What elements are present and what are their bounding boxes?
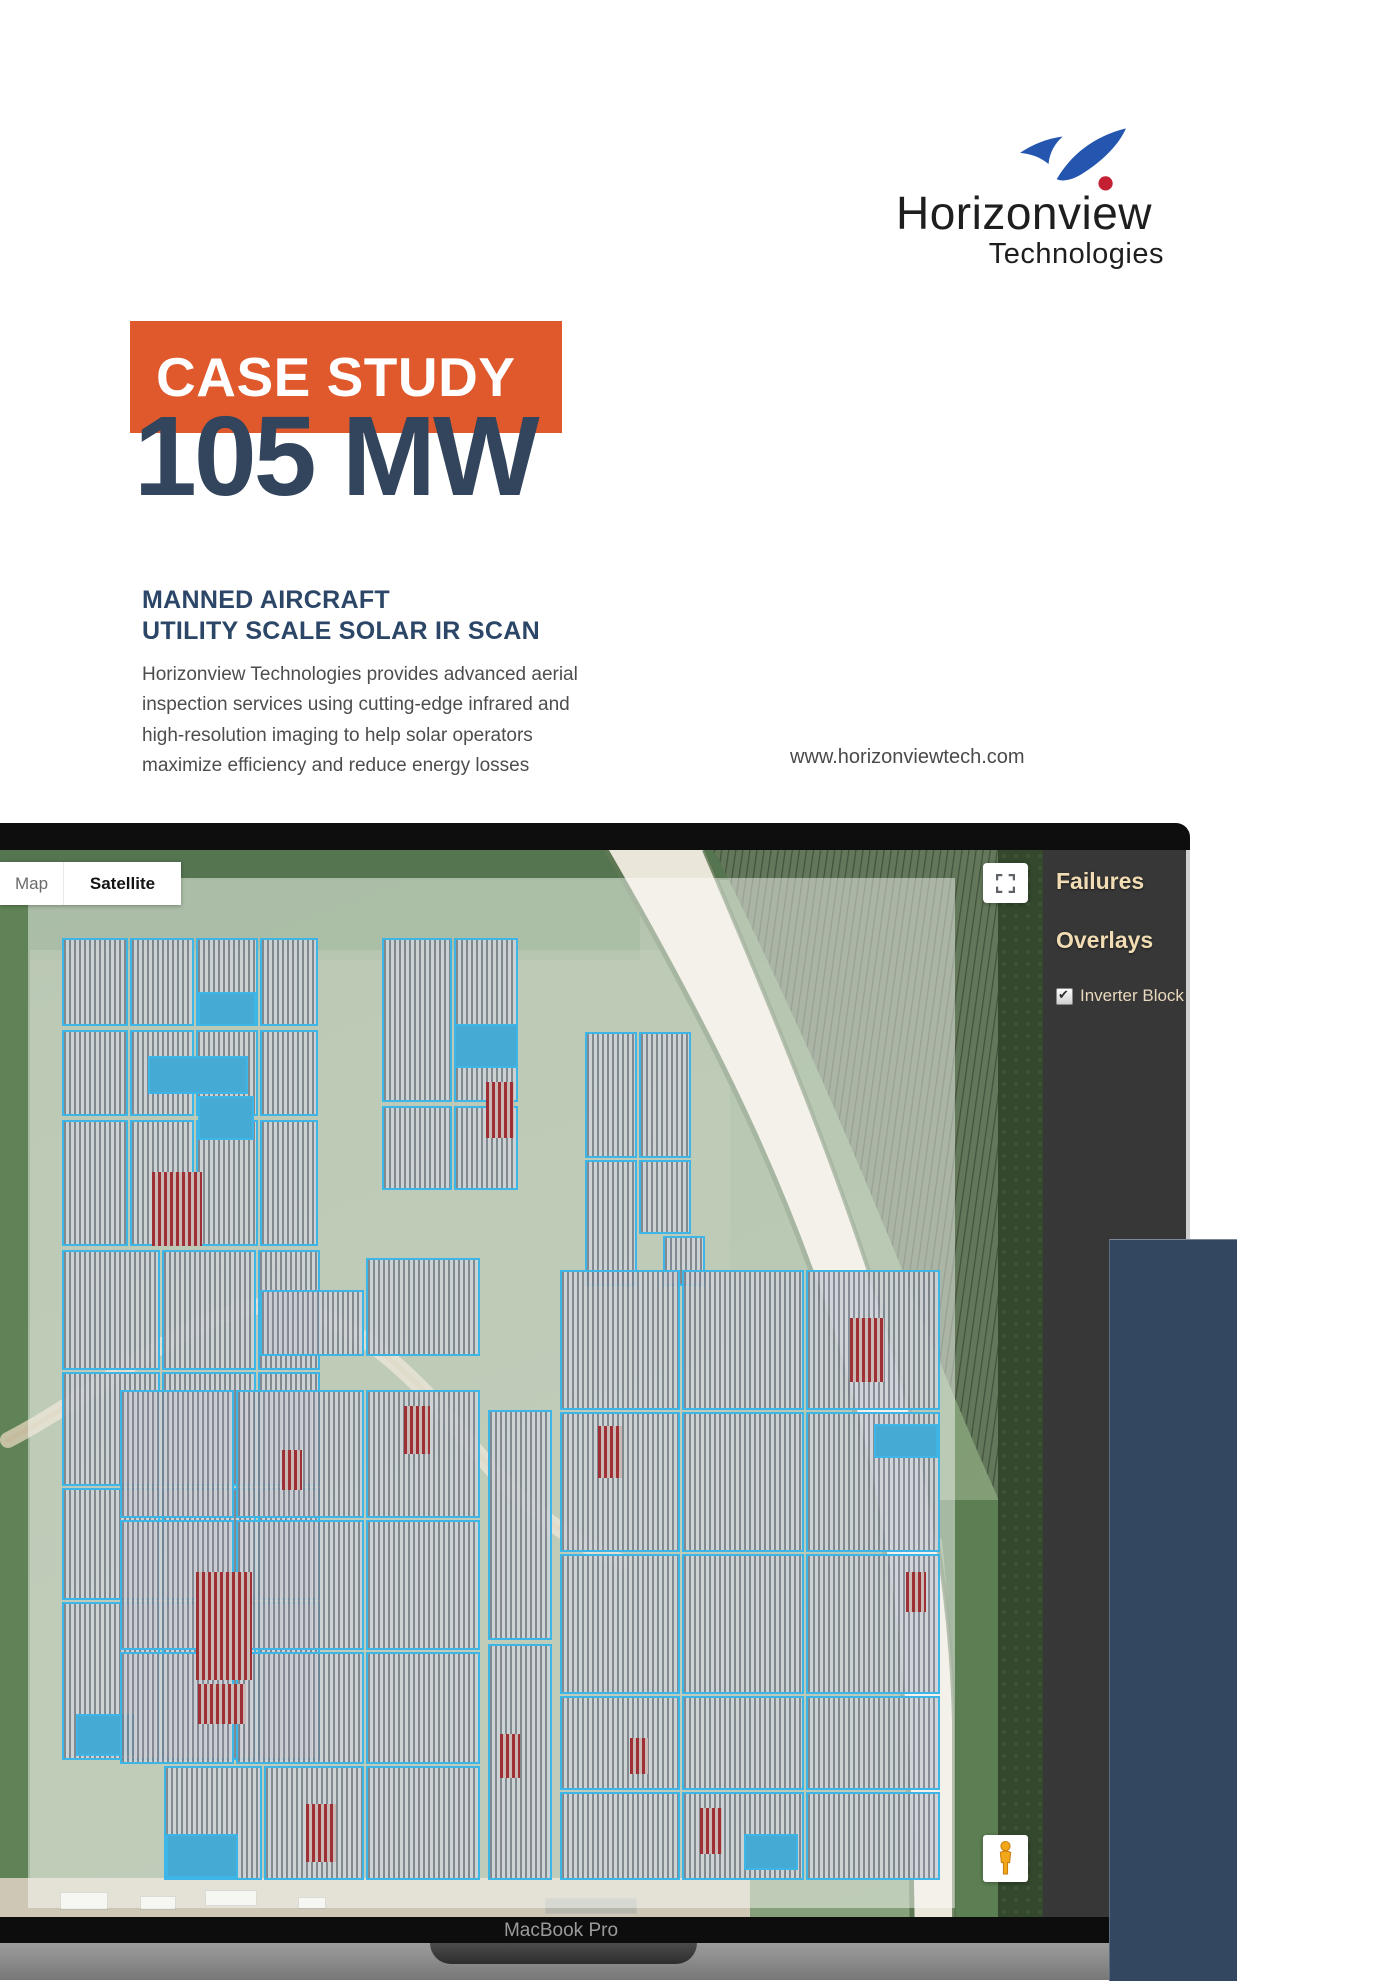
solar-block	[62, 1120, 128, 1246]
logo-wordmark: Horizonview	[896, 186, 1164, 240]
section-heading: MANNED AIRCRAFT UTILITY SCALE SOLAR IR S…	[142, 585, 540, 647]
solar-block	[560, 1554, 680, 1694]
solar-block	[162, 1250, 256, 1370]
solar-block	[62, 1250, 160, 1370]
solar-block	[198, 992, 256, 1026]
solar-block	[306, 1804, 336, 1862]
solar-block	[366, 1652, 480, 1764]
intro-paragraph: Horizonview Technologies provides advanc…	[142, 660, 578, 782]
map-button[interactable]: Map	[0, 862, 64, 905]
panel-title-failures: Failures	[1056, 868, 1186, 895]
check-icon: ✔	[1058, 987, 1069, 1003]
solar-blocks-layer	[0, 850, 1043, 1917]
solar-block	[236, 1652, 364, 1764]
solar-block	[62, 938, 128, 1026]
map-type-control: Map Satellite	[0, 862, 181, 905]
solar-block	[639, 1160, 691, 1234]
solar-block	[152, 1172, 202, 1246]
solar-block	[486, 1082, 514, 1138]
intro-line: inspection services using cutting-edge i…	[142, 690, 578, 720]
solar-block	[260, 938, 318, 1026]
solar-block	[806, 1696, 940, 1790]
solar-block	[560, 1696, 680, 1790]
solar-block	[382, 938, 452, 1102]
solar-block	[366, 1520, 480, 1650]
solar-block	[366, 1766, 480, 1880]
solar-block	[260, 1030, 318, 1116]
map-canvas[interactable]: Map Satellite	[0, 850, 1043, 1917]
solar-block	[382, 1106, 452, 1190]
fullscreen-icon	[996, 874, 1015, 893]
section-heading-line2: UTILITY SCALE SOLAR IR SCAN	[142, 616, 540, 647]
satellite-button[interactable]: Satellite	[64, 862, 181, 905]
solar-block	[260, 1120, 318, 1246]
laptop-top-bezel	[0, 823, 1190, 850]
solar-block	[282, 1450, 302, 1490]
solar-block	[744, 1834, 798, 1870]
solar-block	[196, 1624, 252, 1680]
solar-block	[682, 1412, 804, 1552]
solar-block	[560, 1270, 680, 1410]
panel-title-overlays: Overlays	[1056, 927, 1186, 954]
intro-line: Horizonview Technologies provides advanc…	[142, 660, 578, 690]
solar-block	[454, 1024, 518, 1068]
solar-block	[806, 1792, 940, 1880]
macbook-label: MacBook Pro	[0, 1920, 1122, 1942]
solar-block	[236, 1520, 364, 1650]
solar-block	[500, 1734, 520, 1778]
overlay-item-row: ✔ Inverter Block	[1056, 986, 1186, 1006]
solar-block	[148, 1056, 248, 1094]
inverter-block-label: Inverter Block	[1080, 986, 1184, 1006]
solar-block	[404, 1406, 430, 1454]
solar-block	[630, 1738, 648, 1774]
solar-block	[366, 1258, 480, 1356]
capacity-headline: 105 MW	[134, 400, 537, 513]
solar-block	[874, 1424, 938, 1458]
navy-accent-block	[1109, 1239, 1237, 1981]
section-heading-line1: MANNED AIRCRAFT	[142, 585, 540, 616]
solar-block	[488, 1410, 552, 1640]
laptop-hinge-notch	[430, 1943, 697, 1964]
solar-block	[198, 1684, 246, 1724]
solar-block	[196, 1572, 252, 1632]
inverter-block-checkbox[interactable]: ✔	[1056, 988, 1073, 1005]
laptop-screen: Map Satellite Failures Overlays ✔ Invert…	[0, 850, 1186, 1917]
pegman-icon	[995, 1841, 1016, 1876]
solar-block	[585, 1160, 637, 1286]
solar-block	[585, 1032, 637, 1158]
intro-line: maximize efficiency and reduce energy lo…	[142, 751, 578, 781]
solar-block	[488, 1644, 552, 1880]
solar-block	[700, 1808, 722, 1854]
solar-block	[166, 1834, 238, 1878]
solar-block	[682, 1696, 804, 1790]
solar-block	[130, 938, 194, 1026]
solar-block	[560, 1792, 680, 1880]
solar-block	[639, 1032, 691, 1158]
solar-block	[454, 938, 518, 1102]
solar-block	[598, 1426, 622, 1478]
solar-block	[62, 1030, 128, 1116]
solar-block	[682, 1554, 804, 1694]
solar-block	[198, 1096, 254, 1140]
intro-line: high-resolution imaging to help solar op…	[142, 721, 578, 751]
solar-block	[850, 1318, 884, 1382]
solar-block	[682, 1270, 804, 1410]
solar-block	[120, 1390, 234, 1518]
website-url: www.horizonviewtech.com	[790, 746, 1025, 769]
fullscreen-button[interactable]	[983, 863, 1028, 903]
solar-block	[260, 1290, 364, 1356]
pegman-button[interactable]	[983, 1835, 1028, 1882]
solar-block	[906, 1572, 926, 1612]
logo-subtitle: Technologies	[896, 238, 1164, 271]
